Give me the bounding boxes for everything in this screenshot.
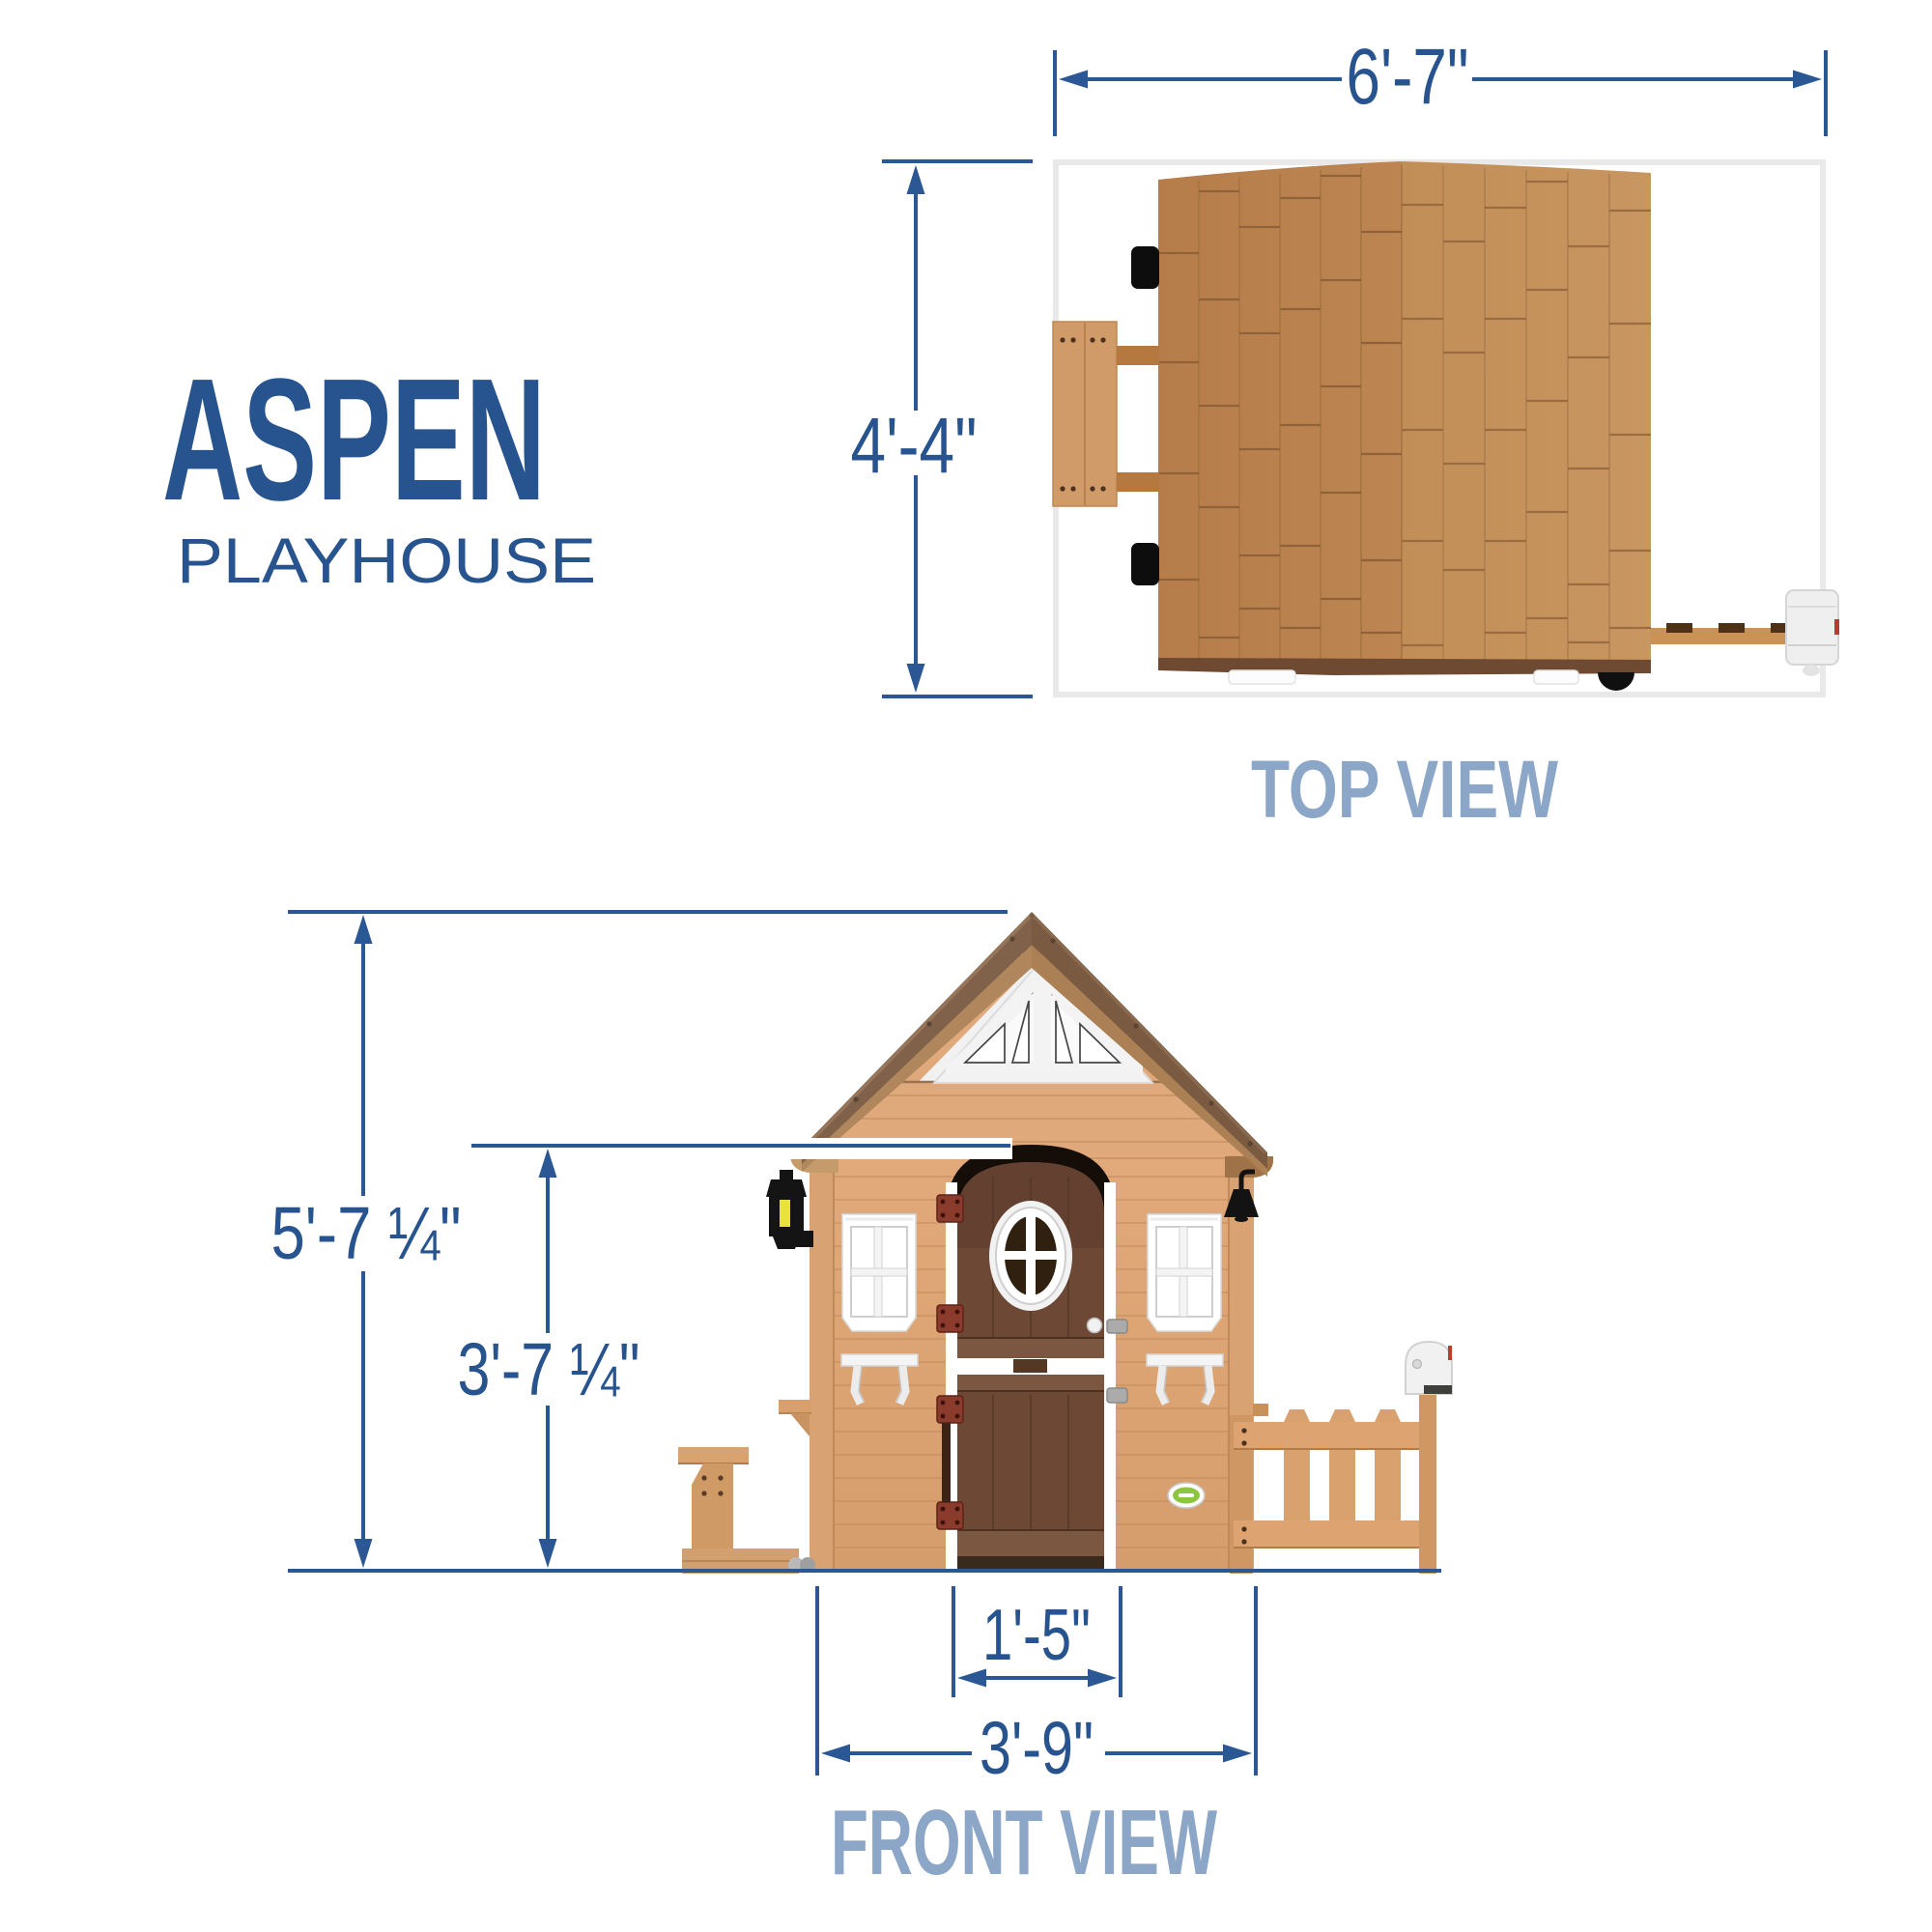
svg-text:ASPEN: ASPEN (162, 343, 546, 537)
svg-text:3'-9": 3'-9" (980, 1707, 1094, 1790)
svg-text:6'-7": 6'-7" (1347, 33, 1469, 121)
svg-text:TOP VIEW: TOP VIEW (1251, 744, 1559, 835)
svg-text:4'-4": 4'-4" (851, 402, 978, 490)
svg-text:FRONT VIEW: FRONT VIEW (831, 1791, 1217, 1894)
svg-text:PLAYHOUSE: PLAYHOUSE (177, 525, 596, 596)
svg-text:1'-5": 1'-5" (982, 1594, 1091, 1675)
svg-text:5'-7 ¼": 5'-7 ¼" (271, 1192, 462, 1275)
svg-text:3'-7 ¼": 3'-7 ¼" (458, 1328, 640, 1411)
